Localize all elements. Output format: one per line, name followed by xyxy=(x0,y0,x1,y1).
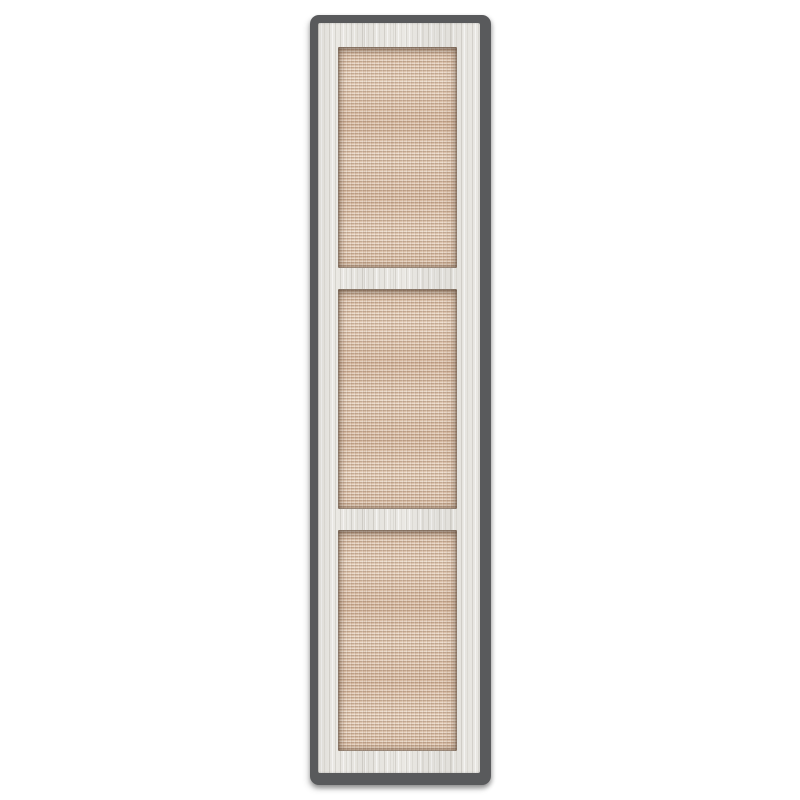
product-image-canvas xyxy=(0,0,800,800)
rattan-panel xyxy=(338,530,457,751)
door-frame xyxy=(318,23,480,773)
rattan-panel xyxy=(338,47,457,268)
rattan-panel xyxy=(338,289,457,510)
cabinet-door xyxy=(310,15,491,785)
